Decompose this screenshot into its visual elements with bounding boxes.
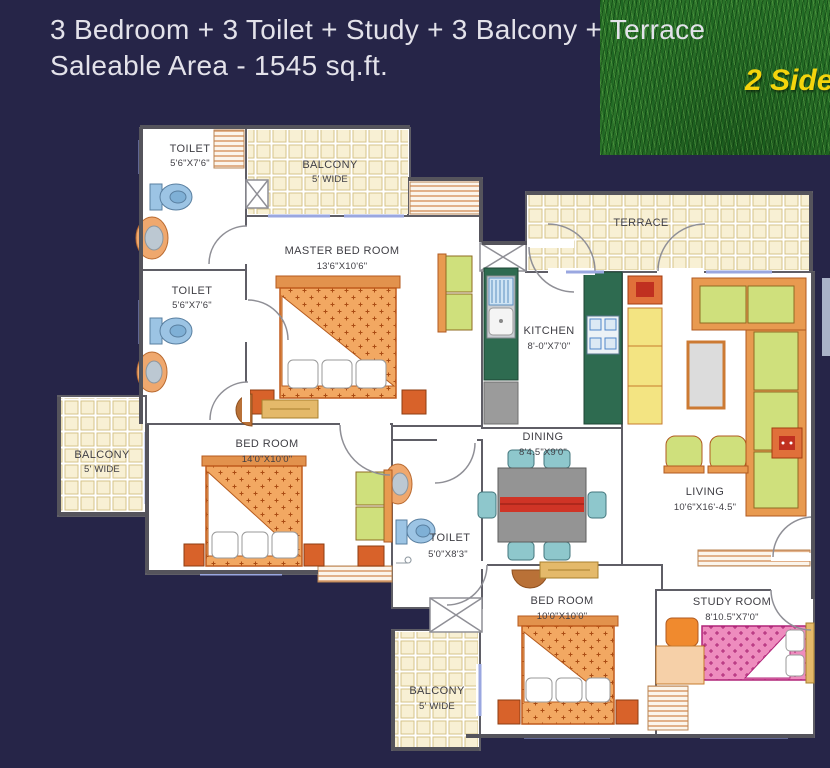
pillow — [786, 655, 804, 676]
dining-chair — [508, 542, 534, 560]
svg-text:TERRACE: TERRACE — [613, 217, 668, 229]
pillow — [586, 678, 610, 702]
nightstand — [184, 544, 204, 566]
fridge — [628, 308, 662, 424]
svg-text:5'0"X8'3": 5'0"X8'3" — [428, 549, 468, 560]
terrace-tiles — [528, 194, 810, 270]
svg-text:8'4.5"X9'0": 8'4.5"X9'0" — [519, 447, 567, 458]
svg-text:8'10.5"X7'0": 8'10.5"X7'0" — [705, 612, 758, 623]
svg-text:10'0"X10'0": 10'0"X10'0" — [537, 611, 588, 622]
nightstand — [402, 390, 426, 414]
study-desk — [656, 646, 704, 684]
dining-chair — [544, 542, 570, 560]
ledge — [822, 278, 830, 356]
pillow — [272, 532, 298, 558]
svg-text:STUDY ROOM: STUDY ROOM — [693, 596, 771, 608]
study-chair — [666, 618, 698, 646]
svg-text:LIVING: LIVING — [686, 486, 724, 498]
dining-chair — [478, 492, 496, 518]
tv-unit — [772, 428, 802, 458]
pillow — [322, 360, 352, 388]
svg-text:BALCONY: BALCONY — [409, 685, 465, 697]
svg-text:BED ROOM: BED ROOM — [235, 438, 298, 450]
room-terrace-label: TERRACE — [613, 217, 668, 229]
svg-text:BALCONY: BALCONY — [74, 449, 130, 461]
pillow — [526, 678, 552, 702]
coffee-table — [688, 342, 724, 408]
study-furniture — [656, 618, 814, 684]
wardrobe — [318, 566, 392, 582]
floor-plan-page: { "header": { "line1": "3 Bedroom + 3 To… — [0, 0, 830, 768]
svg-text:10'6"X16'-4.5": 10'6"X16'-4.5" — [674, 502, 736, 513]
pillow — [786, 630, 804, 651]
svg-text:5' WIDE: 5' WIDE — [312, 174, 348, 185]
pillow — [288, 360, 318, 388]
svg-text:KITCHEN: KITCHEN — [523, 325, 574, 337]
svg-text:5' WIDE: 5' WIDE — [84, 464, 120, 475]
svg-text:DINING: DINING — [523, 431, 564, 443]
page-title: 3 Bedroom + 3 Toilet + Study + 3 Balcony… — [50, 12, 705, 84]
wardrobe — [648, 686, 688, 730]
nightstand — [304, 544, 324, 566]
balcony-top-tiles — [248, 130, 408, 214]
svg-text:13'6"X10'6": 13'6"X10'6" — [317, 261, 368, 272]
svg-text:BED ROOM: BED ROOM — [530, 595, 593, 607]
svg-text:MASTER BED ROOM: MASTER BED ROOM — [285, 245, 400, 257]
pillow — [242, 532, 268, 558]
kitchen-cabinet — [484, 382, 518, 424]
nightstand — [498, 700, 520, 724]
svg-text:5'6"X7'6": 5'6"X7'6" — [170, 158, 210, 169]
pillow — [556, 678, 582, 702]
wardrobe — [410, 182, 480, 214]
armchair — [664, 436, 704, 473]
nightstand — [616, 700, 638, 724]
side-table — [358, 546, 384, 566]
title-line-2: Saleable Area - 1545 sq.ft. — [50, 48, 705, 84]
pillow — [356, 360, 386, 388]
svg-text:8'-0"X7'0": 8'-0"X7'0" — [527, 341, 570, 352]
svg-text:5' WIDE: 5' WIDE — [419, 701, 455, 712]
armchair — [708, 436, 748, 473]
svg-text:14'0"X10'0": 14'0"X10'0" — [242, 454, 293, 465]
svg-text:5'6"X7'6": 5'6"X7'6" — [172, 300, 212, 311]
svg-text:TOILET: TOILET — [172, 285, 213, 297]
corner-badge-text: 2 Side — [745, 64, 830, 98]
svg-text:TOILET: TOILET — [170, 143, 211, 155]
svg-text:TOILET: TOILET — [430, 532, 471, 544]
svg-text:BALCONY: BALCONY — [302, 159, 358, 171]
dining-chair — [588, 492, 606, 518]
wc-icon — [396, 520, 407, 544]
title-line-1: 3 Bedroom + 3 Toilet + Study + 3 Balcony… — [50, 12, 705, 48]
wardrobe — [214, 130, 244, 168]
pillow — [212, 532, 238, 558]
